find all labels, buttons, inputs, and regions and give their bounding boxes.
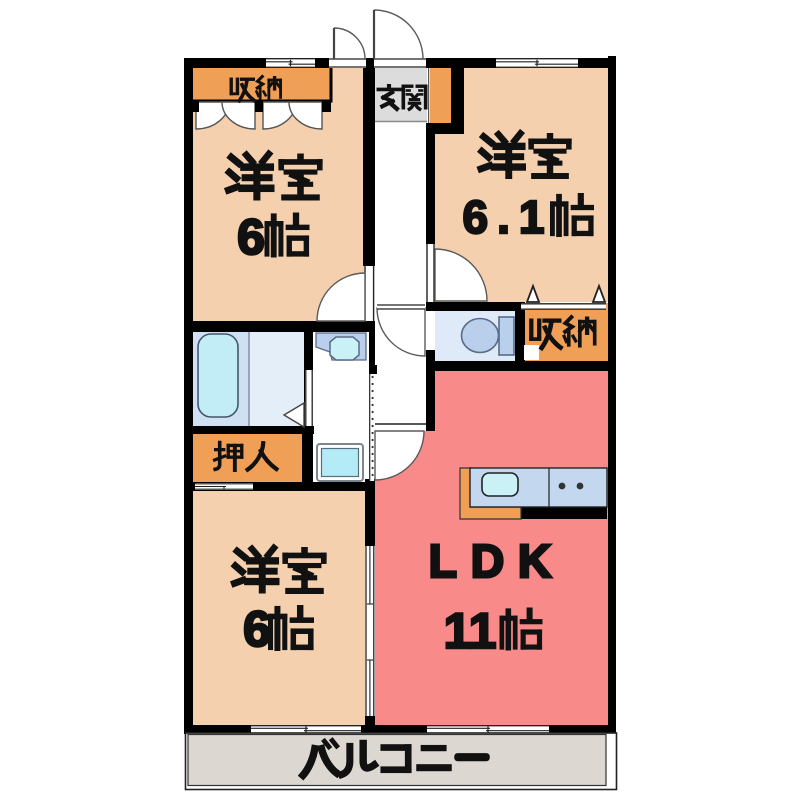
svg-text:6: 6 bbox=[237, 209, 265, 265]
svg-text:6.1: 6.1 bbox=[463, 191, 554, 243]
svg-text:6: 6 bbox=[243, 601, 271, 657]
svg-text:11: 11 bbox=[444, 603, 497, 659]
svg-text:LDK: LDK bbox=[429, 535, 566, 587]
